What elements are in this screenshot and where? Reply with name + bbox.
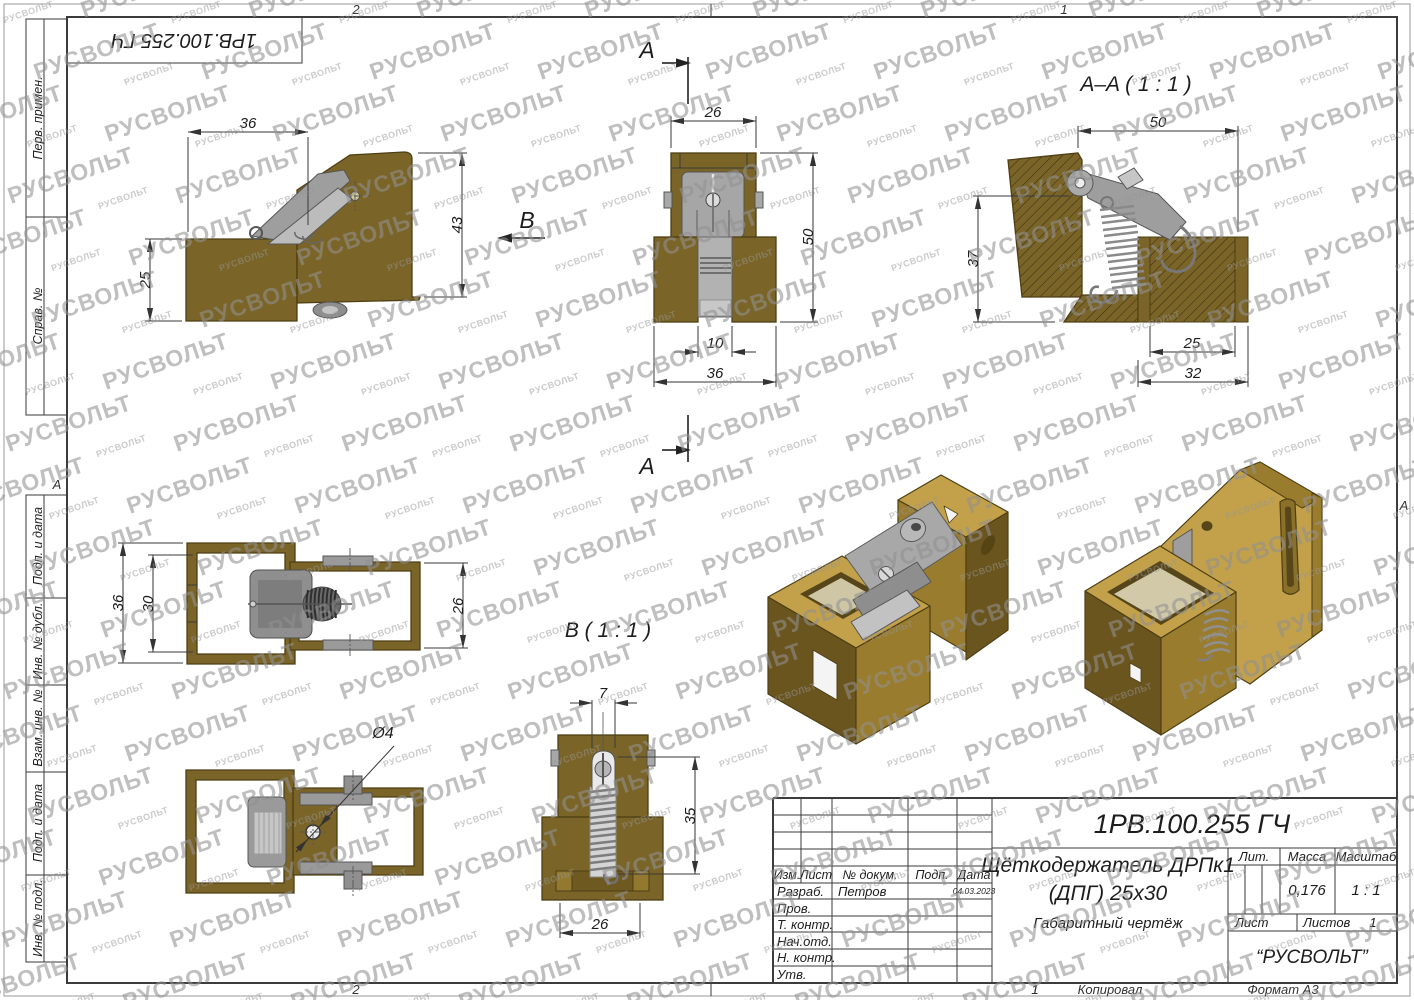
holder-leg xyxy=(1235,237,1248,322)
col-header: Изм. xyxy=(774,868,801,882)
dim-label: Ø4 xyxy=(371,725,393,742)
wall-right-face xyxy=(966,512,1008,660)
dim-label: 26 xyxy=(591,916,609,933)
top-stamp: 1РВ.100.255 ГЧ xyxy=(67,17,302,63)
dim-label: 10 xyxy=(707,335,724,352)
sidebar-box-label: Инв. № дубл. xyxy=(31,603,45,680)
title-block: 1РВ.100.255 ГЧ Щёткодержатель ДРПк1 (ДПГ… xyxy=(773,798,1397,997)
brush-section xyxy=(1150,237,1235,322)
dim-label: 25 xyxy=(137,271,154,289)
dim-label: 7 xyxy=(599,685,608,702)
channel-end xyxy=(556,871,572,891)
company-name: “РУСВОЛЬТ” xyxy=(1256,947,1369,968)
view-side: 36 43 25 B xyxy=(137,115,545,321)
view-front: A 26 50 10 36 A xyxy=(637,37,818,479)
sidebar-box-label: Подп. и дата xyxy=(31,784,45,862)
dim-label: 26 xyxy=(450,597,467,615)
col-header: Подп. xyxy=(915,868,948,882)
dim-label: 36 xyxy=(240,115,257,132)
view-top: 36 30 26 xyxy=(110,543,468,664)
mass-value: 0,176 xyxy=(1288,882,1326,899)
zone-label: 1 xyxy=(1060,2,1067,17)
sidebar-box-label: Взам. инв. № xyxy=(31,689,45,767)
drawing-sheet: 2 1 2 1 A A Копировал Формат А3 1РВ.100.… xyxy=(0,0,1414,1000)
scale-label: Масштаб xyxy=(1336,849,1397,864)
roller-inner xyxy=(322,306,338,314)
sheet-label: Лист xyxy=(1234,915,1269,930)
holder-base-section xyxy=(1064,295,1138,322)
view-iso-front xyxy=(768,475,1008,744)
dim-label: 37 xyxy=(965,250,982,267)
dim-label: 30 xyxy=(140,595,157,612)
brush-face xyxy=(700,300,731,316)
view-title: B ( 1 : 1 ) xyxy=(565,619,651,642)
dim-label: 43 xyxy=(449,216,466,233)
row-label: Разраб. xyxy=(777,884,824,899)
row-label: Нач.отд. xyxy=(777,934,832,949)
col-header: № докум. xyxy=(842,868,897,882)
view-bottom: Ø4 xyxy=(186,725,423,896)
row-label: Н. контр. xyxy=(777,950,836,965)
side-tab xyxy=(664,192,672,208)
side-tab xyxy=(551,750,559,766)
zone-label: A xyxy=(52,477,62,492)
terminal-rail xyxy=(323,556,373,566)
footer-copied-label: Копировал xyxy=(1078,982,1143,997)
brush-face xyxy=(254,812,282,854)
section-letter: A xyxy=(637,37,654,63)
sidebar-box-label: Инв. № подл. xyxy=(31,879,45,957)
view-section-aa: A–A ( 1 : 1 ) 50 37 25 32 xyxy=(965,73,1248,387)
view-arrow-head xyxy=(497,233,512,242)
sheets-label: Листов xyxy=(1302,915,1351,930)
plate-hole xyxy=(1202,522,1212,531)
pivot-hole xyxy=(1075,178,1085,188)
dim-label: 36 xyxy=(707,365,724,382)
lit-label: Лит. xyxy=(1238,849,1269,864)
sidebar-box-label: Подп. и дата xyxy=(31,507,45,585)
dim-label: 50 xyxy=(1150,114,1167,131)
dim-label: 36 xyxy=(110,594,127,611)
sheets-value: 1 xyxy=(1369,915,1376,930)
brush-block xyxy=(186,239,297,321)
row-date: 04.03.2023 xyxy=(953,886,996,896)
view-iso-back xyxy=(1085,462,1322,735)
side-tab xyxy=(755,192,763,208)
footer-sheet-number: 1 xyxy=(1031,982,1038,997)
zone-label: A xyxy=(1399,498,1409,513)
terminal-rail xyxy=(323,640,373,650)
pin-end xyxy=(250,601,256,607)
zone-label: 2 xyxy=(351,2,360,17)
view-b: B ( 1 : 1 ) 7 35 26 xyxy=(542,619,700,938)
sidebar-box-label: Перв. примен. xyxy=(31,76,45,159)
zone-label: 2 xyxy=(351,982,360,997)
row-label: Утв. xyxy=(776,967,807,982)
pivot-hole xyxy=(911,523,921,531)
terminal-rail xyxy=(300,793,372,805)
row-value: Петров xyxy=(838,884,887,899)
dim-label: 35 xyxy=(682,807,699,824)
dim-label: 25 xyxy=(1183,335,1201,352)
top-stamp-text: 1РВ.100.255 ГЧ xyxy=(111,29,257,51)
drawing-canvas: 2 1 2 1 A A Копировал Формат А3 1РВ.100.… xyxy=(0,0,1414,1000)
doc-number: 1РВ.100.255 ГЧ xyxy=(1094,809,1291,839)
scale-value: 1 : 1 xyxy=(1351,882,1380,899)
side-tab xyxy=(647,750,655,766)
lower-leg-left xyxy=(654,237,698,322)
col-header: Лист xyxy=(799,868,832,882)
sidebar-box-label: Справ. № xyxy=(31,287,45,344)
product-title: Щёткодержатель ДРПк1 xyxy=(981,854,1235,877)
dim-label: 32 xyxy=(1185,365,1202,382)
product-title2: (ДПГ) 25х30 xyxy=(1049,882,1168,905)
mass-label: Масса xyxy=(1288,849,1326,864)
row-label: Пров. xyxy=(777,901,811,916)
row-label: Т. контр. xyxy=(777,917,833,932)
footer-format-label: Формат А3 xyxy=(1247,982,1319,997)
section-letter: A xyxy=(637,453,654,479)
lower-leg-right xyxy=(732,237,776,322)
section-title: A–A ( 1 : 1 ) xyxy=(1078,73,1191,96)
doc-type: Габаритный чертёж xyxy=(1033,915,1183,932)
col-header: Дата xyxy=(956,868,991,882)
view-letter: B xyxy=(519,207,534,233)
dim-label: 50 xyxy=(800,228,817,245)
dim-label: 26 xyxy=(704,104,722,121)
plate-edge xyxy=(1312,493,1322,637)
